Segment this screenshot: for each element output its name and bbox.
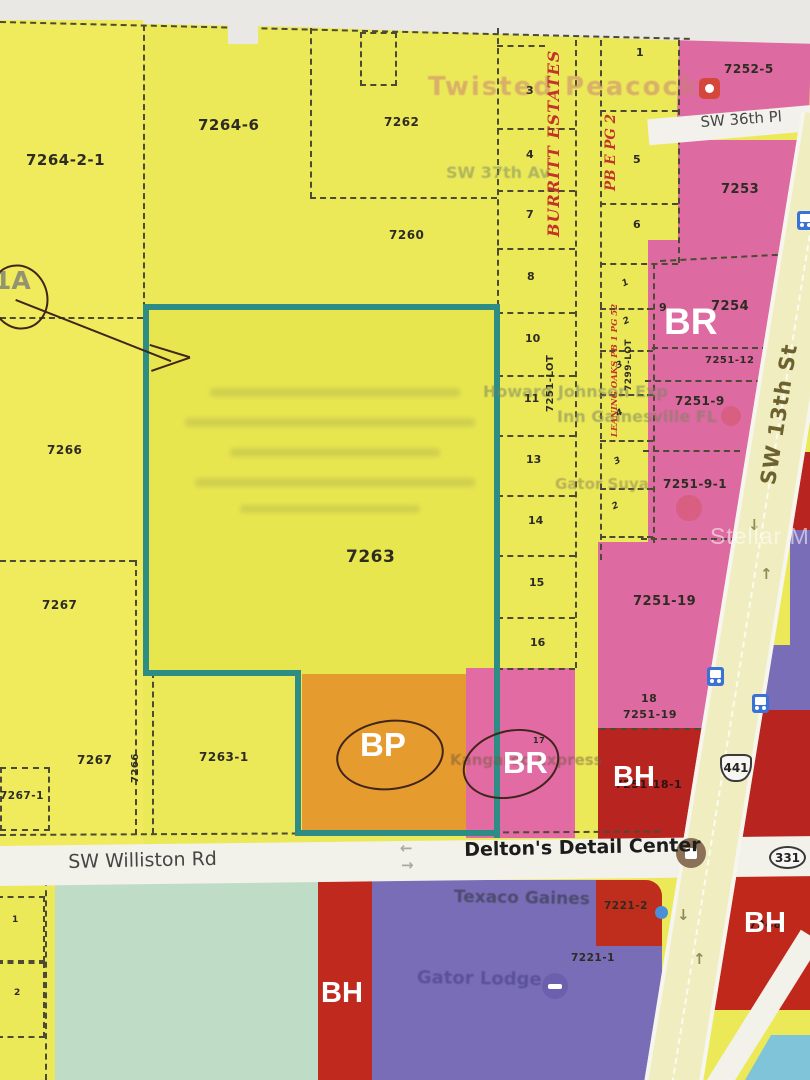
parcel-7266-strip: 7266 [131, 753, 141, 783]
parcel-7251-9: 7251-9 [675, 395, 725, 407]
parcel-7266: 7266 [47, 444, 82, 456]
street-sw-williston-rd: SW Williston Rd [68, 850, 217, 872]
lot-14: 14 [528, 515, 543, 526]
lot-7: 7 [526, 209, 534, 220]
parcel-7251-12: 7251-12 [705, 356, 754, 366]
lane-arrow-down-2: ↓ [677, 908, 690, 923]
ghost-sw-37th-av: SW 37th Av [446, 165, 550, 181]
ghost-gator-suya: Gator Suya [555, 477, 649, 492]
street-sw-13th-st: SW 13th St [758, 342, 801, 486]
zone-label-bh-southeast: BH [744, 909, 786, 938]
ghost-inn-gainesville: Inn Gainesville FL [557, 409, 717, 425]
parcel-7267-upper: 7267 [42, 599, 77, 611]
lot-2-block3: 2 [622, 316, 631, 327]
parcel-7263: 7263 [346, 549, 395, 566]
stellarmls-watermark: Stellar MLS [710, 525, 810, 548]
lot-2-south: 2 [14, 989, 20, 998]
parcel-7251-19: 7251-19 [633, 595, 696, 608]
williston-arrow-left: ← [400, 841, 413, 856]
plat-burritt-estates: BURRITT ESTATES [546, 50, 562, 237]
plat-7299-lot: 7299-LOT [625, 339, 634, 391]
lot-11: 11 [524, 393, 539, 404]
lane-arrow-up-1: ↑ [760, 567, 773, 582]
parcel-lot-18: 18 [641, 693, 657, 704]
zone-label-bh-southwest: BH [321, 979, 363, 1008]
parcel-7263-1: 7263-1 [199, 751, 249, 763]
street-sw-36th-pl: SW 36th Pl [700, 109, 782, 130]
lot-15: 15 [529, 577, 544, 588]
ghost-texaco-gaines: Texaco Gaines [454, 889, 590, 908]
lot-10: 10 [525, 333, 540, 344]
parcel-7267-lower: 7267 [77, 754, 112, 766]
parcel-7262: 7262 [384, 116, 419, 128]
lot-3b-block3: 3 [613, 456, 622, 467]
lane-arrow-up-2: ↑ [693, 952, 706, 967]
parcel-7260: 7260 [389, 229, 424, 241]
parcel-7264-2-1: 7264-2-1 [26, 153, 105, 168]
ghost-twisted-peacock: Twisted Peacock [428, 74, 699, 100]
williston-arrow-right: → [401, 858, 414, 873]
ghost-howard-johnson: Howard Johnson Exp [483, 384, 668, 400]
lot-1-south: 1 [12, 916, 18, 925]
lot-1-block3: 1 [621, 278, 630, 289]
lot-16: 16 [530, 637, 545, 648]
parcel-7252-5: 7252-5 [724, 63, 774, 75]
parcel-7264-6: 7264-6 [198, 118, 259, 133]
lot-1-block2: 1 [636, 47, 644, 58]
lot-5-block2: 5 [633, 154, 641, 165]
parcel-7251-19-lower: 7251-19 [623, 709, 677, 720]
ghost-gator-lodge: Gator Lodge [417, 969, 542, 989]
lot-6-block2: 6 [633, 219, 641, 230]
plat-7251-lot: 7251-LOT [546, 355, 556, 412]
street-deltons-detail-center: Delton's Detail Center [464, 836, 701, 860]
plat-pb-e-pg-2: PB E PG 2 [605, 114, 619, 191]
lot-8: 8 [527, 271, 535, 282]
parcel-7221-2: 7221-2 [604, 901, 648, 912]
labels-layer: Twisted PeacockSW 37th AvHoward Johnson … [0, 0, 810, 1080]
parcel-7267-1: 7267-1 [0, 791, 44, 802]
parcel-7253: 7253 [721, 183, 759, 196]
lot-13: 13 [526, 454, 541, 465]
zoning-map-photo: 441 331 Twisted PeacockSW 37th AvHoward … [0, 0, 810, 1080]
lot-2b-block3: 2 [611, 501, 620, 512]
zone-label-br-main: BR [664, 303, 717, 340]
zone-label-bh-mid: BH [613, 763, 655, 792]
lot-4: 4 [526, 149, 534, 160]
lot-3: 3 [526, 85, 534, 96]
parcel-7251-9-1: 7251-9-1 [663, 478, 727, 490]
parcel-7221-1: 7221-1 [571, 953, 615, 964]
